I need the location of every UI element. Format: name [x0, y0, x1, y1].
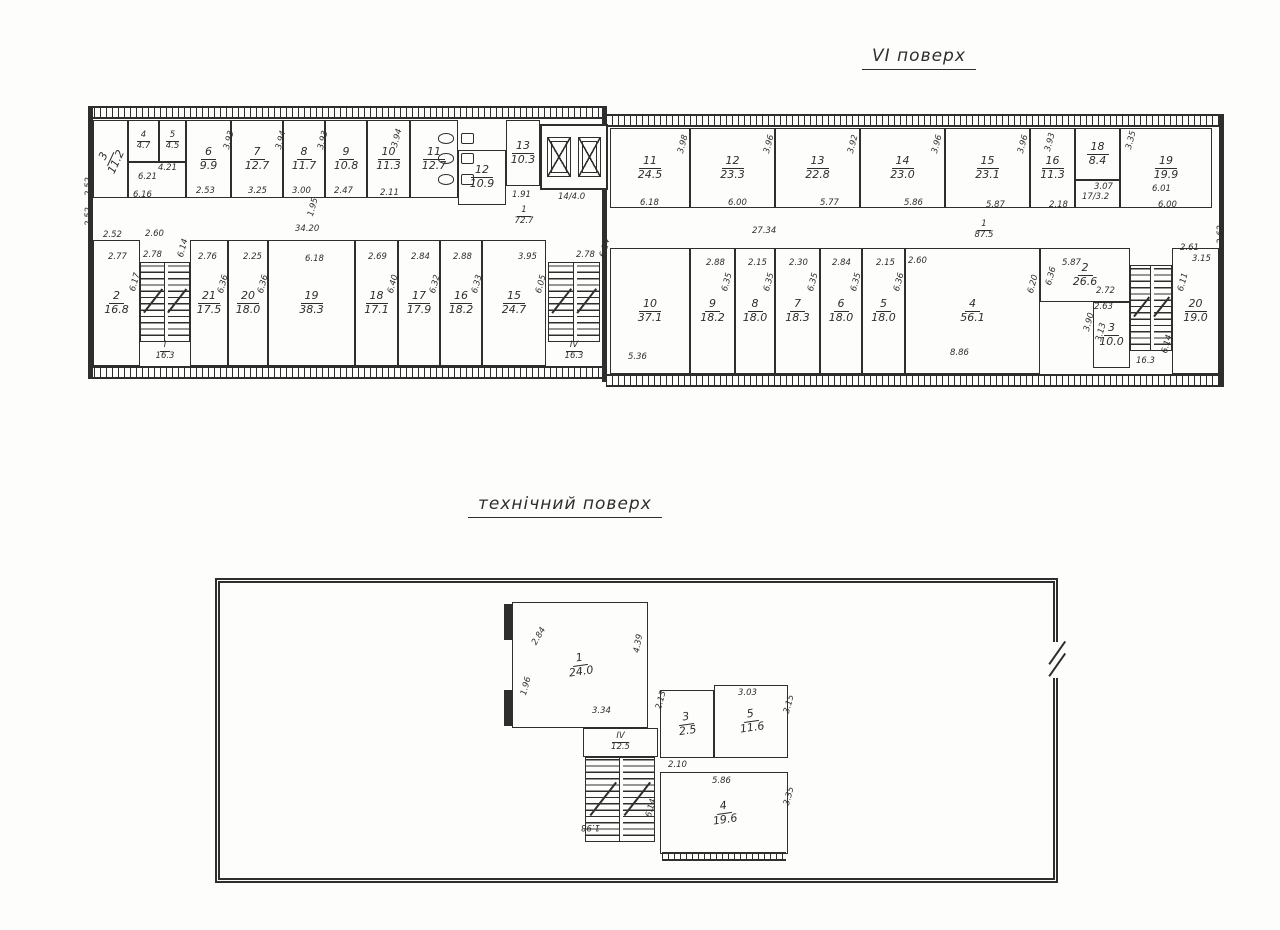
room-label: 1523.1 — [975, 155, 1000, 181]
room-label: 187.5 — [975, 220, 994, 241]
dimension-label: 27.34 — [752, 226, 776, 236]
dimension-label: 2.78 — [576, 250, 595, 260]
room-1: 172.7 — [500, 200, 548, 232]
room-label: 172.7 — [515, 206, 534, 227]
room-3: 32.5 — [660, 690, 714, 758]
room-label: IV16.3 — [565, 341, 584, 362]
room-15: 1523.1 — [945, 128, 1030, 208]
dimension-label: 3.95 — [518, 252, 537, 262]
dimension-label: 6.00 — [728, 198, 747, 208]
room-4: 456.1 — [905, 248, 1040, 374]
elevator-cab — [578, 137, 602, 176]
dimension-label: 2.88 — [453, 252, 472, 262]
dimension-label: 6.00 — [1158, 200, 1177, 210]
room-label: 2018.0 — [236, 290, 261, 316]
dimension-label: 2.15 — [876, 258, 895, 268]
room-label: IV12.5 — [611, 732, 630, 753]
room-label: 311.2 — [93, 142, 127, 175]
room-label: 818.0 — [743, 298, 768, 324]
room-label: 2019.0 — [1183, 298, 1208, 324]
room-4: 44.7 — [128, 120, 159, 162]
room-label: 1124.5 — [638, 155, 663, 181]
stairs — [548, 262, 600, 342]
dimension-label: 6.21 — [138, 172, 157, 182]
room-20: 2019.0 — [1172, 248, 1219, 374]
dimension-label: 2.52 — [103, 230, 122, 240]
dimension-label: 3.15 — [1192, 254, 1211, 264]
room-label: 1618.2 — [449, 290, 474, 316]
room-label: 1919.9 — [1154, 155, 1179, 181]
room-13: 1310.3 — [506, 120, 540, 186]
room-label: 712.7 — [245, 146, 270, 172]
room-label: 511.6 — [737, 707, 765, 736]
dimension-label: 2.52 — [84, 207, 94, 226]
dimension-label: 3.03 — [738, 688, 757, 698]
dimension-label: 5.87 — [986, 200, 1005, 210]
dimension-label: 3.34 — [592, 706, 611, 716]
wall — [1219, 114, 1224, 387]
room-label: 1524.7 — [502, 290, 527, 316]
room-label: 1322.8 — [805, 155, 830, 181]
dimension-label: 5.87 — [1062, 258, 1081, 268]
elevator-cab — [547, 137, 571, 176]
dimension-label: 3.25 — [248, 186, 267, 196]
dimension-label: 3.07 — [1094, 182, 1113, 192]
dimension-label: 4.21 — [158, 163, 177, 173]
elevator-shafts — [540, 124, 608, 190]
room-5: 54.5 — [159, 120, 186, 162]
room-label: 1423.0 — [890, 155, 915, 181]
dimension-label: 2.62 — [1216, 225, 1226, 244]
dimension-label: 6.01 — [1152, 184, 1171, 194]
room-label: 216.8 — [104, 290, 129, 316]
room-label: 910.8 — [334, 146, 359, 172]
dimension-label: 2.25 — [243, 252, 262, 262]
window-wall — [88, 366, 606, 379]
room-IV: IV12.5 — [583, 728, 658, 757]
dimension-label: 14/4.0 — [558, 192, 585, 202]
dimension-label: 6.18 — [305, 254, 324, 264]
dimension-label: 6.18 — [640, 198, 659, 208]
dimension-label: 17/3.2 — [1082, 192, 1109, 202]
room-label: 618.0 — [829, 298, 854, 324]
dimension-label: 2.53 — [196, 186, 215, 196]
dimension-label: 5.86 — [712, 776, 731, 786]
room-label: 1717.9 — [407, 290, 432, 316]
room-label: 1817.1 — [364, 290, 389, 316]
room-12: 1223.3 — [690, 128, 775, 208]
dimension-label: 6.14 — [176, 238, 191, 259]
dimension-label: 2.88 — [706, 258, 725, 268]
dimension-label: 2.78 — [143, 250, 162, 260]
room-label: 188.4 — [1087, 141, 1109, 167]
room-label: 2117.5 — [197, 290, 222, 316]
dimension-label: 1.91 — [512, 190, 531, 200]
room-label: 124.0 — [566, 650, 594, 679]
room-label: 44.7 — [137, 131, 151, 152]
technical-floor-title: технічний поверх — [468, 494, 662, 518]
dimension-label: 1.98 — [581, 822, 600, 832]
dimension-label: 5.86 — [904, 198, 923, 208]
dimension-label: 8.86 — [950, 348, 969, 358]
room-label: 32.5 — [677, 710, 698, 738]
room-IV: IV16.3 — [556, 338, 592, 364]
dimension-label: 2.84 — [832, 258, 851, 268]
dimension-label: 2.72 — [1096, 286, 1115, 296]
dimension-label: 16.3 — [1136, 356, 1155, 366]
room-13: 1322.8 — [775, 128, 860, 208]
window-wall — [662, 852, 786, 861]
room-label: I16.3 — [156, 341, 175, 362]
dimension-label: 5.36 — [628, 352, 647, 362]
dimension-label: 2.61 — [1180, 243, 1199, 253]
dimension-label: 2.77 — [108, 252, 127, 262]
dimension-label: 2.11 — [380, 188, 399, 198]
room-3: 311.2 — [93, 120, 128, 198]
room-label: 1037.1 — [638, 298, 663, 324]
dimension-label: 2.10 — [668, 760, 687, 770]
room-10: 1037.1 — [610, 248, 690, 374]
window-wall — [606, 114, 1224, 127]
room-label: 54.5 — [166, 131, 180, 152]
dimension-label: 2.69 — [368, 252, 387, 262]
room-1: 187.5 — [960, 214, 1008, 246]
dimension-label: 2.76 — [198, 252, 217, 262]
room-1: 124.0 — [512, 602, 648, 728]
floor-6-title: VI поверх — [862, 46, 976, 70]
room-I: I16.3 — [147, 338, 183, 364]
room-label: 718.3 — [785, 298, 810, 324]
room-label: 419.6 — [710, 798, 738, 827]
room-label: 69.9 — [200, 146, 218, 172]
dimension-label: 2.63 — [1094, 302, 1113, 312]
room-label: 918.2 — [700, 298, 725, 324]
dimension-label: 34.20 — [295, 224, 319, 234]
toilet-fixtures — [436, 126, 482, 192]
room-label: 1310.3 — [511, 140, 536, 166]
dimension-label: 2.60 — [145, 229, 164, 239]
dimension-label: 3.00 — [292, 186, 311, 196]
room-label: 456.1 — [960, 298, 985, 324]
room-label: 1011.3 — [376, 146, 401, 172]
room-label: 811.7 — [292, 146, 317, 172]
dimension-label: 2.30 — [789, 258, 808, 268]
floor-plan-drawing: VI поверх технічний поверх 311.244.754.5… — [0, 0, 1280, 930]
dimension-label: 2.84 — [411, 252, 430, 262]
room-label: 1223.3 — [720, 155, 745, 181]
room-label: 1611.3 — [1040, 155, 1065, 181]
room-label: 1938.3 — [299, 290, 324, 316]
dimension-label: 6.16 — [133, 190, 152, 200]
dimension-label: 5.77 — [820, 198, 839, 208]
stairs — [140, 262, 190, 342]
dimension-label: 2.18 — [1049, 200, 1068, 210]
dimension-label: 2.52 — [84, 177, 94, 196]
dimension-label: 2.15 — [748, 258, 767, 268]
window-wall — [88, 106, 606, 119]
room-label: 518.0 — [871, 298, 896, 324]
break-mark — [1046, 642, 1068, 678]
room-18: 188.4 — [1075, 128, 1120, 180]
dimension-label: 2.47 — [334, 186, 353, 196]
dimension-label: 2.60 — [908, 256, 927, 266]
window-wall — [606, 374, 1224, 387]
dimension-label: 1.95 — [306, 197, 321, 218]
